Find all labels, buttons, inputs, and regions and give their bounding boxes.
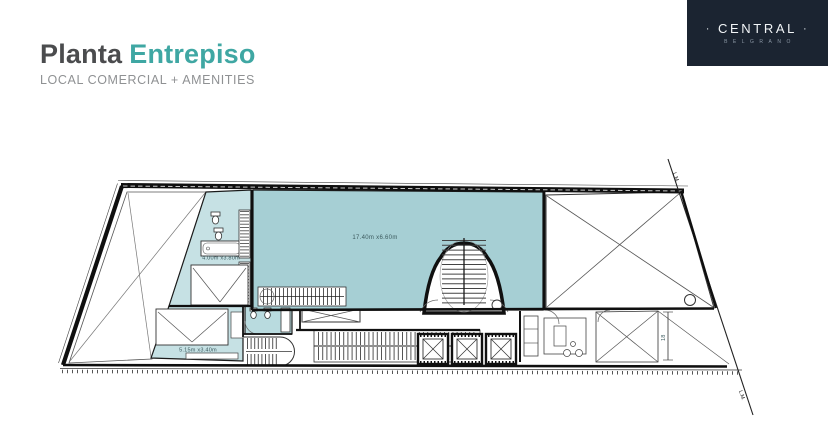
void-right [546,192,714,308]
slide: PlantaEntrepiso LOCAL COMERCIAL + AMENIT… [0,0,828,422]
bed-icon [156,309,228,345]
stair-hall-flight [258,287,346,306]
dimension-line: 18 [661,312,673,360]
stool-icon [576,350,583,357]
bedroom-label: 5.15m x3.40m [179,348,217,354]
column-circle [685,295,696,306]
toilet-icon [212,216,218,224]
floor-plan: 18 17.40m x6.60m 4.00m x3.80m 5.15m x3.4… [0,0,828,422]
elevator-3 [486,334,516,364]
bidet-icon [215,232,221,240]
bed-icon [191,265,248,305]
toilet-icon [251,312,257,319]
elevator-2 [452,334,482,364]
stool-icon [564,350,571,357]
elevator-1 [418,334,448,364]
bidet-icon [265,312,271,319]
shower-icon [281,308,290,332]
property-line-label-bottom: L.M. [737,390,746,401]
sofa-icon [524,316,538,356]
property-line-label-top: L.M. [671,172,680,183]
door-arc [545,310,559,324]
suite-label: 4.00m x3.80m [202,256,240,262]
desk-icon [544,318,586,354]
stool-icon [571,342,576,347]
main-hall-label: 17.40m x6.60m [352,235,397,241]
shaft-small [300,309,360,330]
dimension-label: 18 [661,334,667,341]
amenities-room-furniture [520,311,586,362]
stair-u-turn [244,337,295,366]
